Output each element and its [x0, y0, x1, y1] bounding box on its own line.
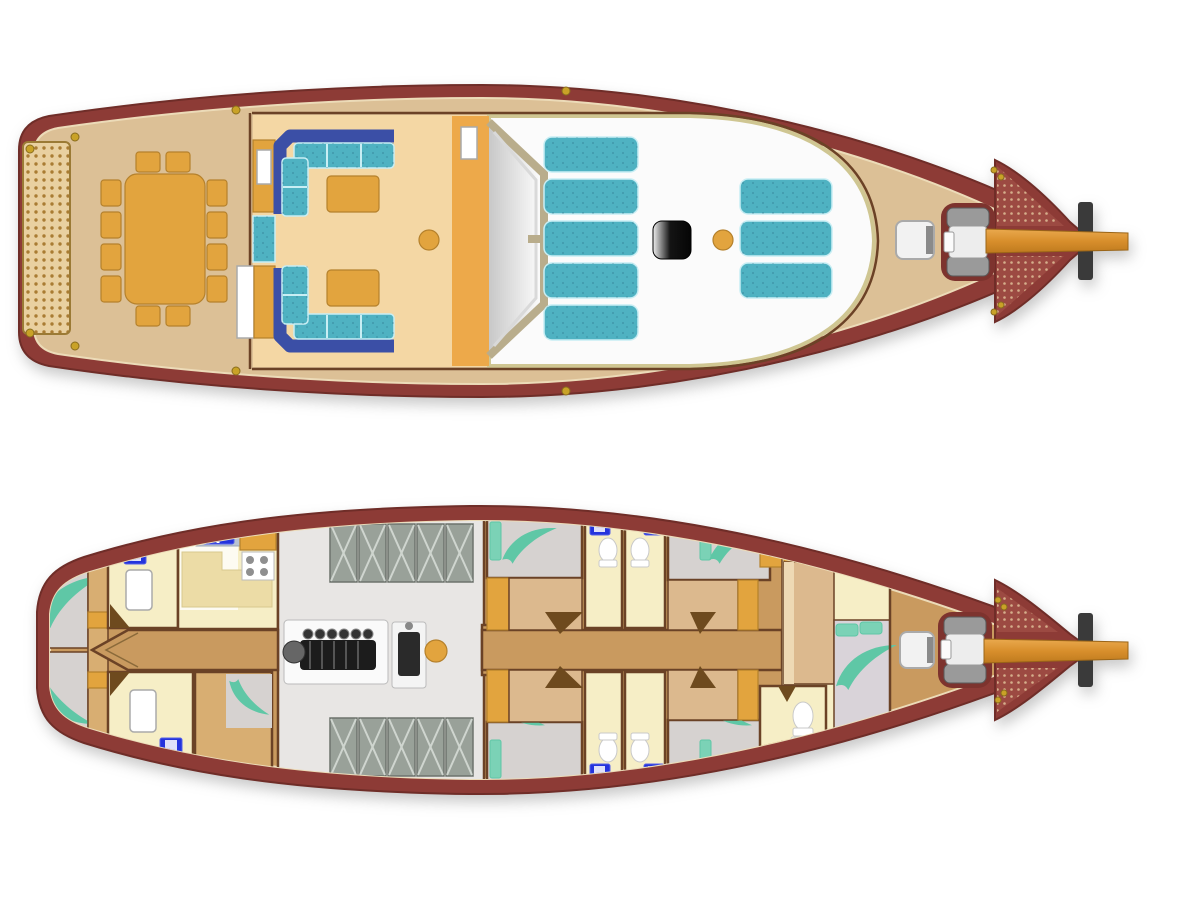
dining-chair	[166, 306, 190, 326]
main-engine	[283, 620, 388, 684]
foredeck-hatch	[896, 221, 934, 259]
companionway-trunk	[452, 116, 489, 366]
bar-counter	[237, 266, 254, 338]
deck-plan-canvas	[0, 0, 1200, 900]
dining-table	[125, 174, 205, 304]
dining-chair	[207, 180, 227, 206]
shower-icon	[126, 570, 152, 610]
toilet-icon	[599, 538, 617, 567]
mast-foot	[713, 230, 733, 250]
deck-hatch	[653, 221, 691, 259]
engine-room	[278, 518, 484, 782]
deck-plan-drawing	[0, 0, 1200, 900]
companionway-door	[461, 127, 477, 159]
guest-cabin-3	[487, 666, 583, 782]
coffee-table	[327, 270, 379, 306]
dining-chair	[207, 244, 227, 270]
dining-chair	[101, 180, 121, 206]
bedside-unit	[738, 580, 758, 630]
sunpad-cushions-fwd	[740, 179, 832, 298]
upper-deck-plan	[19, 85, 1128, 397]
dining-chair	[101, 244, 121, 270]
dining-chair	[136, 306, 160, 326]
mast-foot	[425, 640, 447, 662]
guest-bathroom-3	[585, 672, 622, 782]
shower-icon	[130, 690, 156, 732]
bedside-unit	[487, 578, 509, 630]
generator	[392, 622, 426, 688]
dining-chair	[166, 152, 190, 172]
salon-table-foot	[419, 230, 439, 250]
foredeck-hatch	[900, 632, 934, 668]
stove-icon	[242, 552, 274, 580]
guest-bathroom-1	[585, 518, 622, 628]
lower-deck-plan	[28, 506, 1128, 794]
bedside-unit	[487, 670, 509, 722]
dining-chair	[207, 276, 227, 302]
dining-chair	[207, 212, 227, 238]
toilet-icon	[631, 733, 649, 762]
toilet-icon	[599, 733, 617, 762]
coffee-table	[327, 176, 379, 212]
sunpad-cushions-aft	[544, 137, 638, 340]
dining-chair	[136, 152, 160, 172]
stern-grating	[23, 142, 70, 334]
bedside-unit	[738, 670, 758, 720]
dining-chair	[101, 276, 121, 302]
salon-sofa-port	[280, 136, 394, 216]
toilet-icon	[631, 538, 649, 567]
guest-cabin-1	[487, 517, 583, 634]
salon-sofa-starboard	[280, 266, 394, 346]
dining-chair	[101, 212, 121, 238]
